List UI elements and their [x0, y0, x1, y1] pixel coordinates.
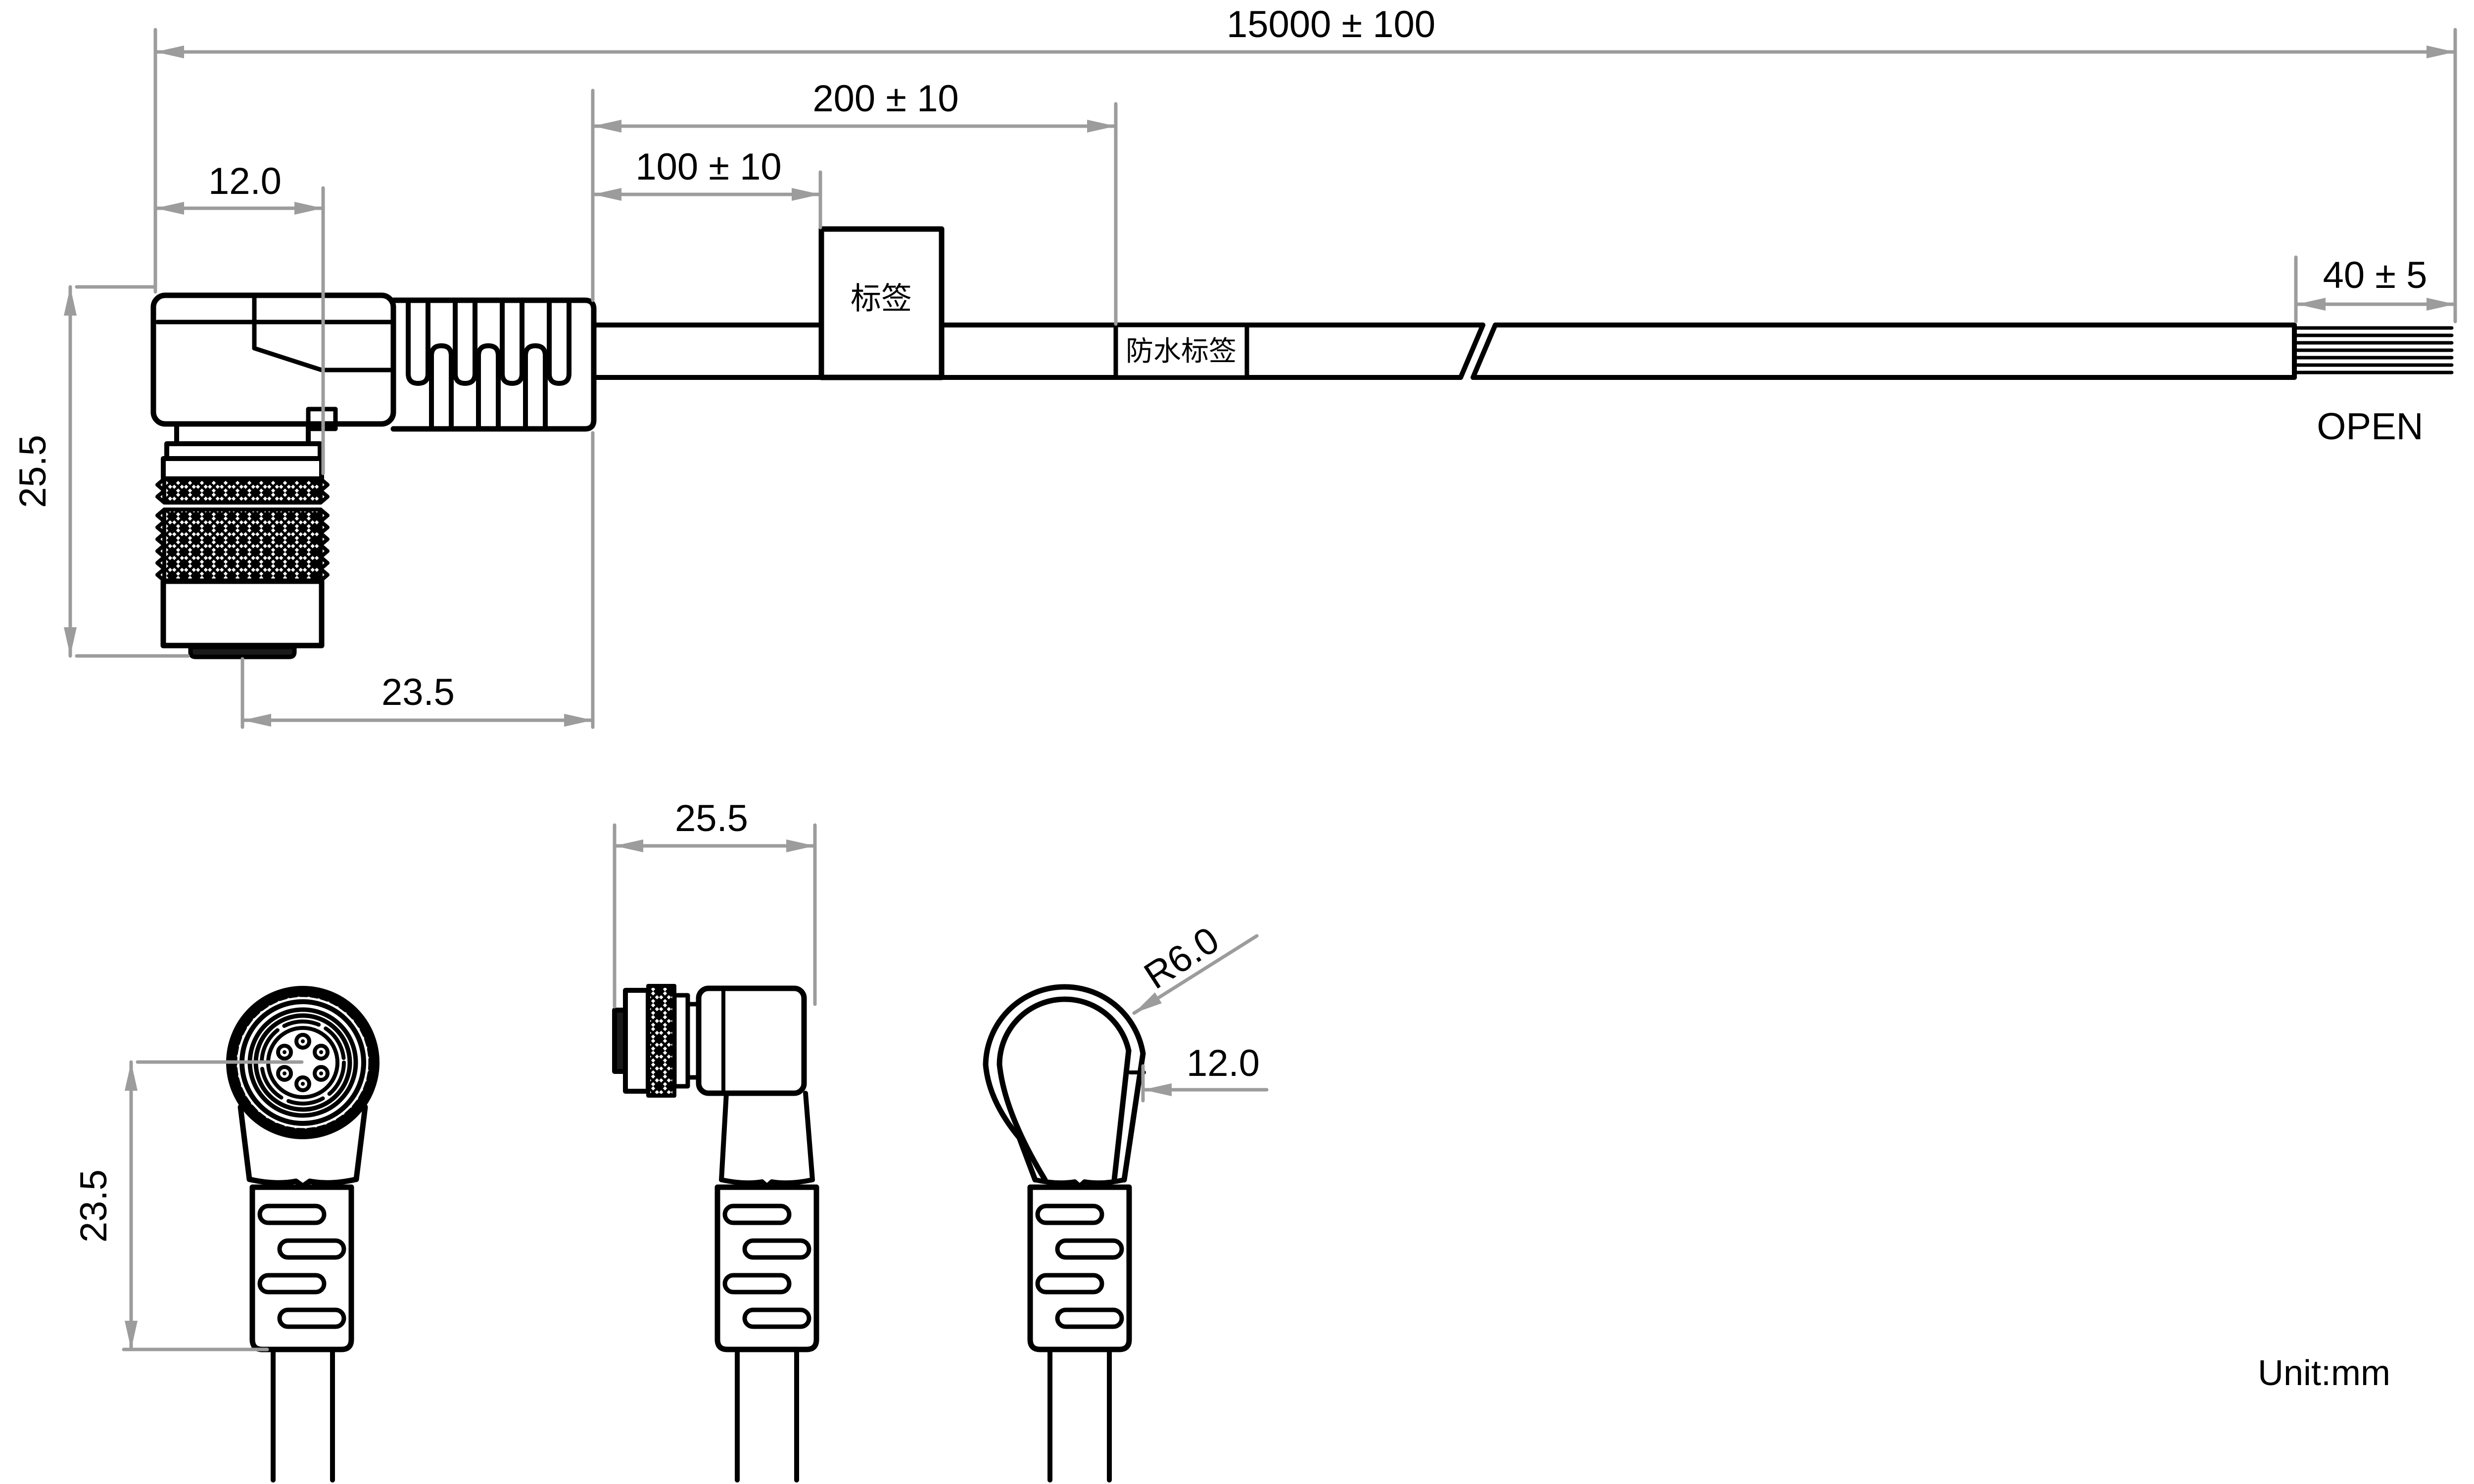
open-end-label: OPEN	[2317, 406, 2423, 448]
mating-face-cap	[190, 647, 294, 657]
label-tag-text: 标签	[851, 281, 912, 316]
knurl-band-wide	[164, 510, 321, 581]
pin	[278, 1067, 291, 1080]
dim-front-depth-text: 23.5	[73, 1169, 115, 1243]
knurl-band-narrow	[164, 479, 321, 503]
pin	[278, 1046, 291, 1059]
dim-40-text: 40 ± 5	[2323, 254, 2427, 296]
dim-profile-width-text: 25.5	[675, 797, 748, 839]
unit-note: Unit:mm	[2258, 1353, 2390, 1393]
cable-assembly-technical-drawing: 标签 防水标签 OPEN 1	[0, 0, 2474, 1484]
dim-12-text: 12.0	[208, 160, 282, 202]
dim-200-text: 200 ± 10	[812, 78, 958, 120]
page-background	[0, 0, 2474, 1484]
dim-100-text: 100 ± 10	[635, 146, 781, 188]
drawing-page: 标签 防水标签 OPEN 1	[0, 0, 2474, 1484]
waterproof-label-text: 防水标签	[1126, 335, 1237, 367]
stripped-wires	[2294, 328, 2452, 372]
dim-25-5-text: 25.5	[12, 435, 54, 508]
knurl-side	[648, 986, 674, 1096]
dim-bend-width-text: 12.0	[1187, 1042, 1260, 1084]
pin	[315, 1067, 328, 1080]
pin	[296, 1077, 309, 1090]
dim-overall-length-text: 15000 ± 100	[1227, 3, 1435, 46]
pin	[296, 1035, 309, 1048]
pin	[315, 1046, 328, 1059]
dim-23-5-text: 23.5	[381, 671, 455, 713]
